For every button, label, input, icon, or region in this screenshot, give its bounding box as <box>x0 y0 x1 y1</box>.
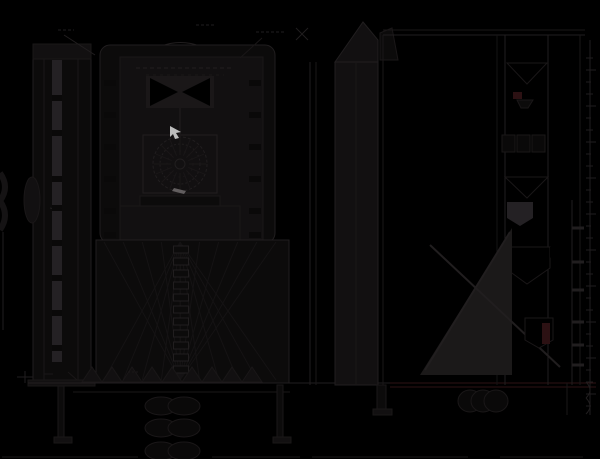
column-tick <box>104 80 116 86</box>
column-tick <box>104 176 116 182</box>
chain-segment <box>174 342 189 349</box>
front-view-leg <box>277 385 283 437</box>
section-cell <box>532 135 545 152</box>
shaft-band <box>140 196 220 206</box>
center-chain-column <box>174 246 189 373</box>
hanging-chain-links <box>145 397 200 459</box>
chain-link <box>168 419 200 437</box>
column-tick <box>52 310 62 316</box>
column-tick <box>104 112 116 118</box>
column-tick <box>52 176 62 182</box>
column-tick <box>249 112 261 118</box>
chain-link <box>168 442 200 459</box>
left-view-foot-pad <box>54 437 72 443</box>
column-tick <box>249 144 261 150</box>
section-cell <box>517 135 530 152</box>
technical-drawing-canvas <box>0 0 600 459</box>
column-tick <box>249 80 261 86</box>
chain-segment <box>174 282 189 289</box>
maroon-detail-square <box>513 92 522 99</box>
shaft-leg <box>377 385 386 412</box>
maroon-detail-strip <box>542 323 550 344</box>
column-tick <box>104 232 116 238</box>
chain-segment <box>174 294 189 301</box>
chain-segment <box>174 318 189 325</box>
chain-segment <box>174 354 189 361</box>
column-tick <box>249 176 261 182</box>
chain-segment <box>174 258 189 265</box>
left-callout-blob <box>24 177 40 223</box>
section-cell <box>502 135 515 152</box>
chain-segment <box>174 246 189 253</box>
dimension-blob <box>484 390 508 412</box>
bottom-dimension-blob <box>458 390 508 412</box>
chain-segment <box>174 270 189 277</box>
chain-segment <box>174 330 189 337</box>
column-tick <box>52 95 62 101</box>
column-tick <box>52 345 62 351</box>
column-tick <box>52 275 62 281</box>
column-tick <box>52 130 62 136</box>
shaft-foot-pad <box>373 409 392 415</box>
front-view-foot-pad <box>273 437 291 443</box>
left-view-leg <box>58 386 64 437</box>
column-tick <box>52 205 62 211</box>
drawing-viewport <box>0 0 600 459</box>
chain-link <box>168 397 200 415</box>
chain-segment <box>174 306 189 313</box>
column-tick <box>249 208 261 214</box>
column-tick <box>249 232 261 238</box>
column-tick <box>104 208 116 214</box>
column-tick <box>52 240 62 246</box>
column-tick <box>104 144 116 150</box>
